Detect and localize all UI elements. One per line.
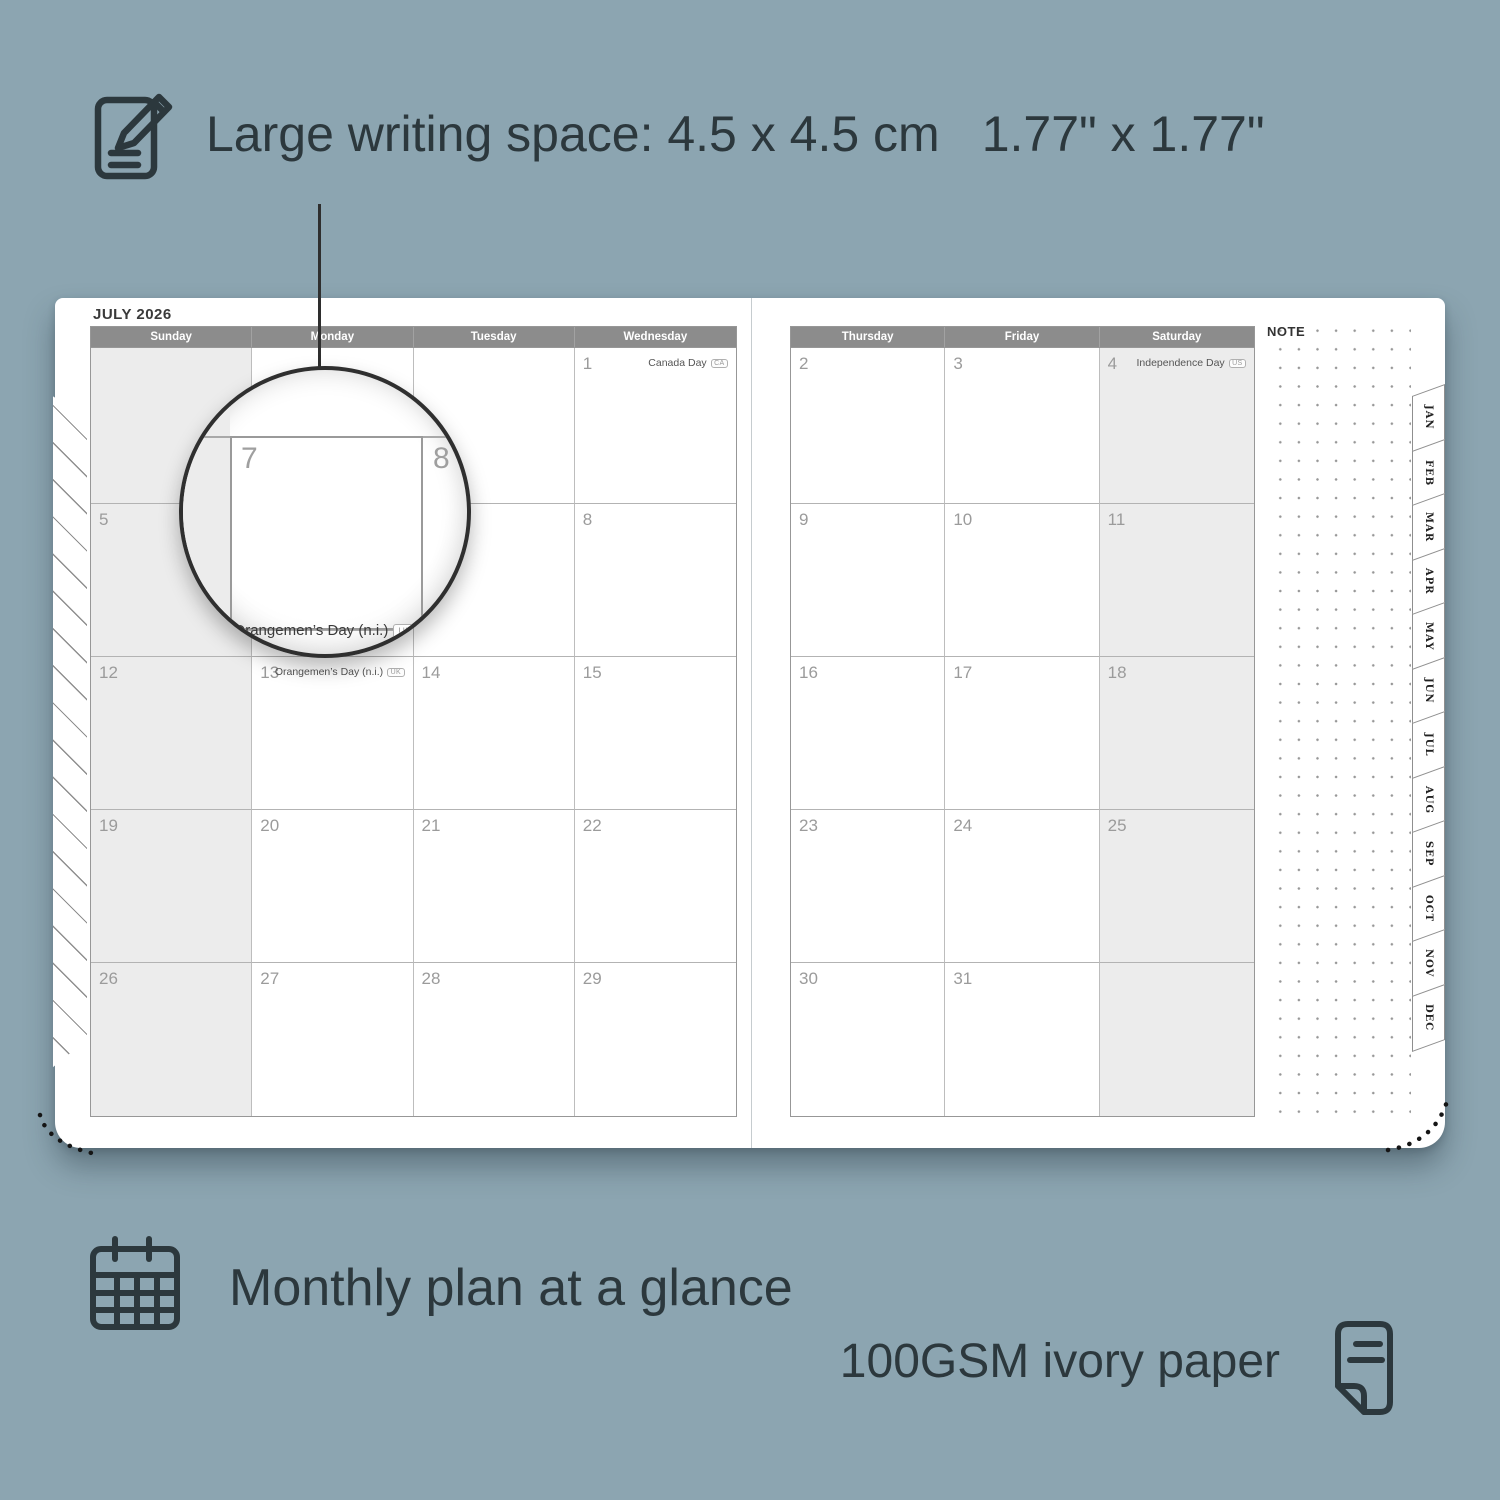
writing-space-metric: Large writing space: 4.5 x 4.5 cm [206, 106, 940, 162]
month-tab-dec: DEC [1412, 983, 1445, 1051]
month-tabs: JANFEBMARAPRMAYJUNJULAUGSEPOCTNOVDEC [1412, 391, 1445, 1045]
stitch-bottom-left [32, 1100, 162, 1170]
month-tab-label: MAR [1423, 512, 1434, 542]
holiday-label: Orangemen’s Day (n.i.)UK [275, 666, 405, 678]
holiday-name: Orangemen’s Day (n.i.) [275, 666, 383, 678]
calendar-cell: 15 [575, 657, 736, 810]
feature-writing-space: Large writing space: 4.5 x 4.5 cm1.77" x… [88, 82, 1265, 186]
day-number: 28 [422, 969, 441, 988]
spine-gutter [751, 298, 752, 1148]
calendar-cell: 18 [1100, 657, 1254, 810]
month-tab-label: AUG [1423, 785, 1434, 813]
calendar-cell: 19 [91, 810, 252, 963]
day-number: 5 [99, 510, 108, 529]
calendar-cell: 16 [791, 657, 945, 810]
calendar-cell: 22 [575, 810, 736, 963]
calendar-cell: 31 [945, 963, 1099, 1116]
note-dot-grid-panel: NOTE [1265, 326, 1411, 1115]
calendar-cell: 26 [91, 963, 252, 1116]
day-number: 8 [583, 510, 592, 529]
writing-space-imperial: 1.77" x 1.77" [982, 106, 1265, 162]
month-tab-label: NOV [1423, 949, 1434, 977]
weekday-header-wednesday: Wednesday [575, 327, 736, 347]
day-number: 15 [583, 663, 602, 682]
magnifier-circle: 7 8 Orangemen’s Day (n.i.) UK [179, 366, 471, 658]
day-number: 10 [953, 510, 972, 529]
calendar-grid-icon [85, 1228, 185, 1338]
paper-sheet-icon [1320, 1316, 1400, 1420]
month-tab-label: FEB [1423, 459, 1434, 485]
magnified-holiday-label: Orangemen’s Day (n.i.) [234, 622, 389, 639]
calendar-right-page: ThursdayFridaySaturday 234Independence D… [790, 326, 1255, 1117]
calendar-cell: 25 [1100, 810, 1254, 963]
month-tab-label: MAY [1423, 622, 1434, 650]
calendar-cell: 30 [791, 963, 945, 1116]
magnified-day-number: 8 [433, 442, 450, 476]
day-number: 14 [422, 663, 441, 682]
day-number: 1 [583, 354, 592, 373]
month-tab-label: JUN [1423, 677, 1434, 703]
monthly-plan-caption: Monthly plan at a glance [229, 1258, 793, 1318]
holiday-name: Independence Day [1137, 357, 1225, 369]
day-number: 19 [99, 816, 118, 835]
day-number: 27 [260, 969, 279, 988]
calendar-cell: 12 [91, 657, 252, 810]
calendar-cell: 14 [414, 657, 575, 810]
weekday-header-sunday: Sunday [91, 327, 252, 347]
day-number: 18 [1108, 663, 1127, 682]
feature-monthly-plan: Monthly plan at a glance [85, 1228, 793, 1338]
calendar-cell: 3 [945, 348, 1099, 504]
calendar-cell [1100, 963, 1254, 1116]
weekday-header-row: ThursdayFridaySaturday [790, 326, 1255, 347]
calendar-cell: 2 [791, 348, 945, 504]
calendar-cell: 21 [414, 810, 575, 963]
holiday-label: Independence DayUS [1137, 357, 1246, 369]
day-number: 4 [1108, 354, 1117, 373]
holiday-country-badge: CA [711, 359, 728, 368]
month-tab-label: DEC [1423, 1004, 1434, 1031]
day-number: 17 [953, 663, 972, 682]
calendar-cell: 9 [791, 504, 945, 657]
day-number: 2 [799, 354, 808, 373]
calendar-cell: 29 [575, 963, 736, 1116]
day-number: 26 [99, 969, 118, 988]
calendar-cell: 27 [252, 963, 413, 1116]
day-number: 11 [1108, 510, 1126, 529]
weekday-header-tuesday: Tuesday [414, 327, 575, 347]
weekday-header-monday: Monday [252, 327, 413, 347]
day-number: 30 [799, 969, 818, 988]
day-number: 29 [583, 969, 602, 988]
holiday-country-badge: UK [393, 624, 416, 638]
calendar-cell: 8 [575, 504, 736, 657]
calendar-body: 234Independence DayUS9101116171823242530… [790, 347, 1255, 1117]
product-image-canvas: Large writing space: 4.5 x 4.5 cm1.77" x… [0, 0, 1500, 1500]
day-number: 3 [953, 354, 962, 373]
day-number: 31 [953, 969, 972, 988]
day-number: 16 [799, 663, 818, 682]
day-number: 12 [99, 663, 118, 682]
calendar-cell: 23 [791, 810, 945, 963]
day-number: 25 [1108, 816, 1127, 835]
holiday-name: Canada Day [648, 357, 706, 369]
month-tab-label: SEP [1423, 841, 1434, 866]
day-number: 9 [799, 510, 808, 529]
calendar-cell: 24 [945, 810, 1099, 963]
paper-caption: 100GSM ivory paper [840, 1334, 1280, 1389]
day-number: 23 [799, 816, 818, 835]
calendar-cell: 4Independence DayUS [1100, 348, 1254, 504]
holiday-country-badge: UK [387, 668, 404, 677]
month-tab-label: OCT [1423, 895, 1434, 922]
month-tab-label: JUL [1423, 733, 1434, 756]
calendar-cell: 28 [414, 963, 575, 1116]
magnified-sunday-column [183, 370, 230, 654]
holiday-label: Canada DayCA [648, 357, 728, 369]
calendar-cell: 11 [1100, 504, 1254, 657]
stitch-bottom-right [1378, 1088, 1478, 1168]
magnified-holiday: Orangemen’s Day (n.i.) UK [183, 622, 467, 639]
note-label: NOTE [1267, 324, 1305, 339]
calendar-cell: 20 [252, 810, 413, 963]
weekday-header-friday: Friday [945, 327, 1099, 347]
magnified-day-number: 7 [241, 442, 258, 476]
feature-paper: 100GSM ivory paper [840, 1316, 1400, 1420]
weekday-header-saturday: Saturday [1100, 327, 1254, 347]
notepad-pencil-icon [88, 82, 188, 186]
weekday-header-thursday: Thursday [791, 327, 945, 347]
calendar-cell: 13Orangemen’s Day (n.i.)UK [252, 657, 413, 810]
writing-space-caption: Large writing space: 4.5 x 4.5 cm1.77" x… [206, 104, 1265, 164]
callout-connector-line [318, 204, 321, 370]
weekday-header-row: SundayMondayTuesdayWednesday [90, 326, 737, 347]
month-title: JULY 2026 [93, 306, 172, 323]
day-number: 24 [953, 816, 972, 835]
calendar-cell: 17 [945, 657, 1099, 810]
calendar-cell: 1Canada DayCA [575, 348, 736, 504]
day-number: 21 [422, 816, 441, 835]
calendar-cell: 10 [945, 504, 1099, 657]
page-edge-hatching [53, 386, 87, 1074]
holiday-country-badge: US [1229, 359, 1246, 368]
day-number: 20 [260, 816, 279, 835]
day-number: 22 [583, 816, 602, 835]
magnified-writing-cell [230, 436, 423, 630]
month-tab-label: APR [1423, 568, 1434, 595]
month-tab-label: JAN [1423, 405, 1434, 430]
